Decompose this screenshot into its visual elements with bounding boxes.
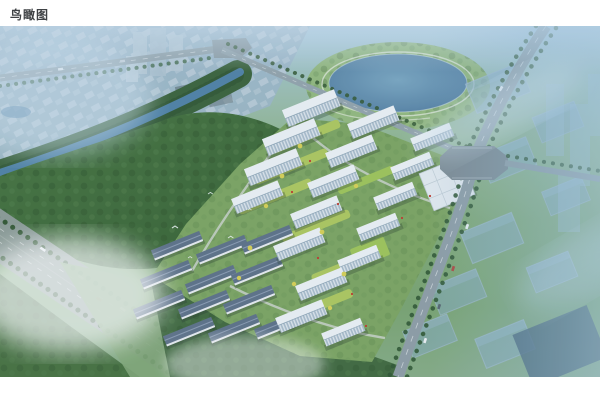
page-title: 鸟瞰图 xyxy=(10,6,49,23)
aerial-scene xyxy=(0,26,600,377)
rendering-page: 鸟瞰图 xyxy=(0,0,600,400)
birdseye-rendering-image xyxy=(0,26,600,377)
fog-overlay xyxy=(0,26,600,377)
